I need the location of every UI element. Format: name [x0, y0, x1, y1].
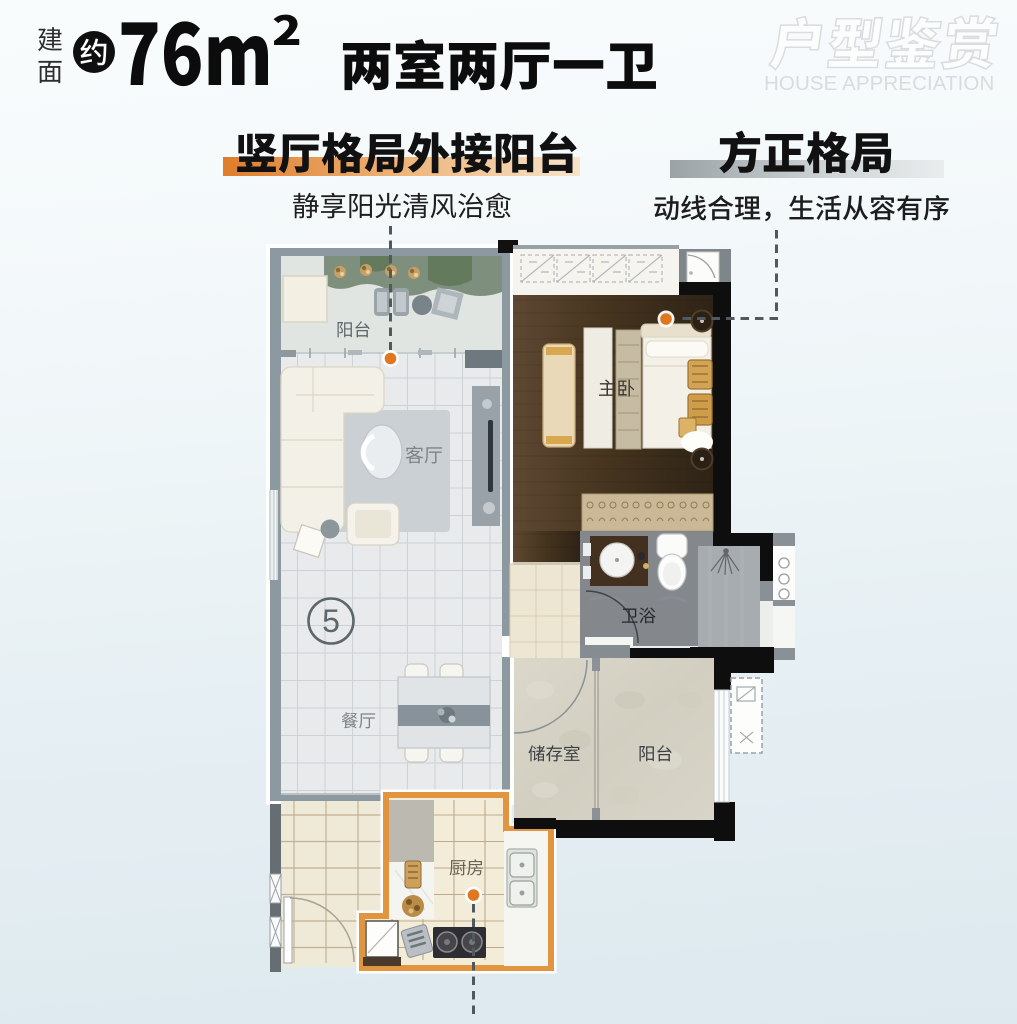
svg-text:HOUSE APPRECIATION: HOUSE APPRECIATION — [764, 72, 994, 95]
svg-text:5: 5 — [322, 603, 340, 639]
